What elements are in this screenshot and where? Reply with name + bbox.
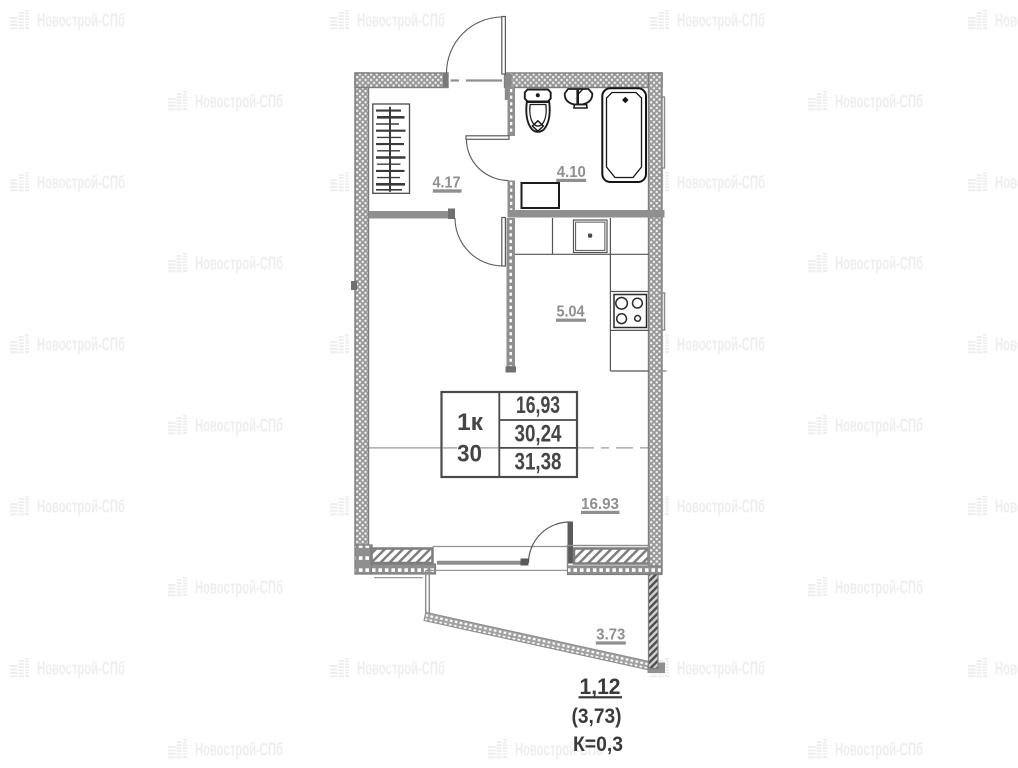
svg-text:3.73: 3.73 <box>596 627 625 644</box>
svg-text:16,93: 16,93 <box>516 392 560 419</box>
svg-text:31,38: 31,38 <box>515 449 562 476</box>
svg-text:1,12: 1,12 <box>580 674 621 699</box>
svg-text:30: 30 <box>457 441 482 468</box>
svg-text:4.10: 4.10 <box>557 164 586 181</box>
svg-text:К=0,3: К=0,3 <box>573 733 623 756</box>
svg-text:16.93: 16.93 <box>581 496 619 513</box>
svg-text:1к: 1к <box>457 409 484 436</box>
svg-text:30,24: 30,24 <box>515 421 563 448</box>
svg-text:5.04: 5.04 <box>557 304 585 321</box>
svg-text:4.17: 4.17 <box>433 175 461 192</box>
svg-text:(3,73): (3,73) <box>572 705 622 728</box>
